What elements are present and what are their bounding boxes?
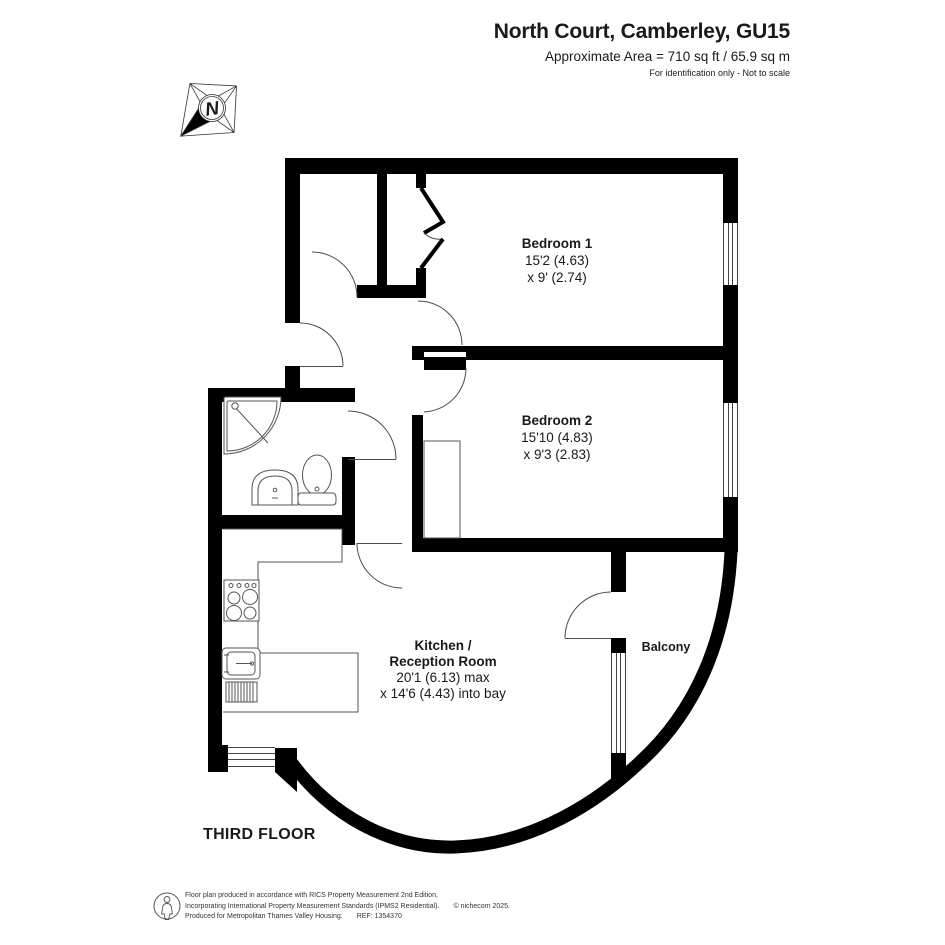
curved-bay-wall [291, 551, 731, 847]
footer-line3: Produced for Metropolitan Thames Valley … [185, 912, 825, 923]
bedroom1-window [723, 223, 738, 285]
kitchen-dim1: 20'1 (6.13) max [396, 670, 490, 685]
balcony-label: Balcony [642, 640, 691, 654]
bedroom1-dim1: 15'2 (4.63) [525, 253, 589, 268]
bedroom2-door [424, 368, 466, 412]
footer-text: Floor plan produced in accordance with R… [185, 891, 825, 923]
footer-line2: Incorporating International Property Mea… [185, 902, 825, 913]
balcony-window [611, 653, 626, 753]
bedroom2-label: Bedroom 2 [522, 413, 593, 428]
kitchen-fixtures [222, 529, 358, 712]
bedroom1-label: Bedroom 1 [522, 236, 593, 251]
footer-line2-text: Incorporating International Property Mea… [185, 903, 439, 910]
drainer [226, 682, 257, 702]
bedroom2-window [723, 403, 738, 497]
footer-line1: Floor plan produced in accordance with R… [185, 891, 825, 902]
bedroom2-dim1: 15'10 (4.83) [521, 430, 593, 445]
basin [252, 470, 298, 505]
compass: N [159, 61, 259, 160]
balcony-door [565, 592, 611, 639]
hall-door [418, 301, 462, 345]
bedroom1-dim2: x 9' (2.74) [527, 270, 587, 285]
kitchen-bay-window [228, 745, 275, 769]
footer-line3-text: Produced for Metropolitan Thames Valley … [185, 913, 343, 920]
hob [224, 580, 259, 621]
cupboard-door [312, 252, 357, 297]
bathroom-fixtures [224, 397, 336, 505]
floorplan-page: North Court, Camberley, GU15 Approximate… [0, 0, 945, 945]
floorplan-drawing: N Bedroom 1 15'2 (4.63) x 9' (2.74) Bedr… [0, 0, 945, 945]
floor-label: THIRD FLOOR [203, 826, 316, 844]
footer-ref: REF: 1354370 [357, 913, 402, 920]
bedroom2-dim2: x 9'3 (2.83) [523, 447, 590, 462]
footer-copyright: © nichecom 2025. [453, 903, 510, 910]
corner-shower [224, 397, 281, 454]
front-door [300, 323, 343, 367]
bedroom2-wardrobe [424, 441, 460, 538]
kitchen-door [357, 543, 402, 588]
bathroom-door [348, 411, 396, 460]
kitchen-label-line2: Reception Room [389, 654, 496, 669]
kitchen-label-line1: Kitchen / [414, 638, 471, 653]
toilet [298, 455, 336, 505]
nichecom-logo-icon [152, 889, 182, 923]
kitchen-dim2: x 14'6 (4.43) into bay [380, 686, 506, 701]
bedroom1-folding-door [421, 188, 443, 268]
kitchen-sink [222, 648, 260, 679]
